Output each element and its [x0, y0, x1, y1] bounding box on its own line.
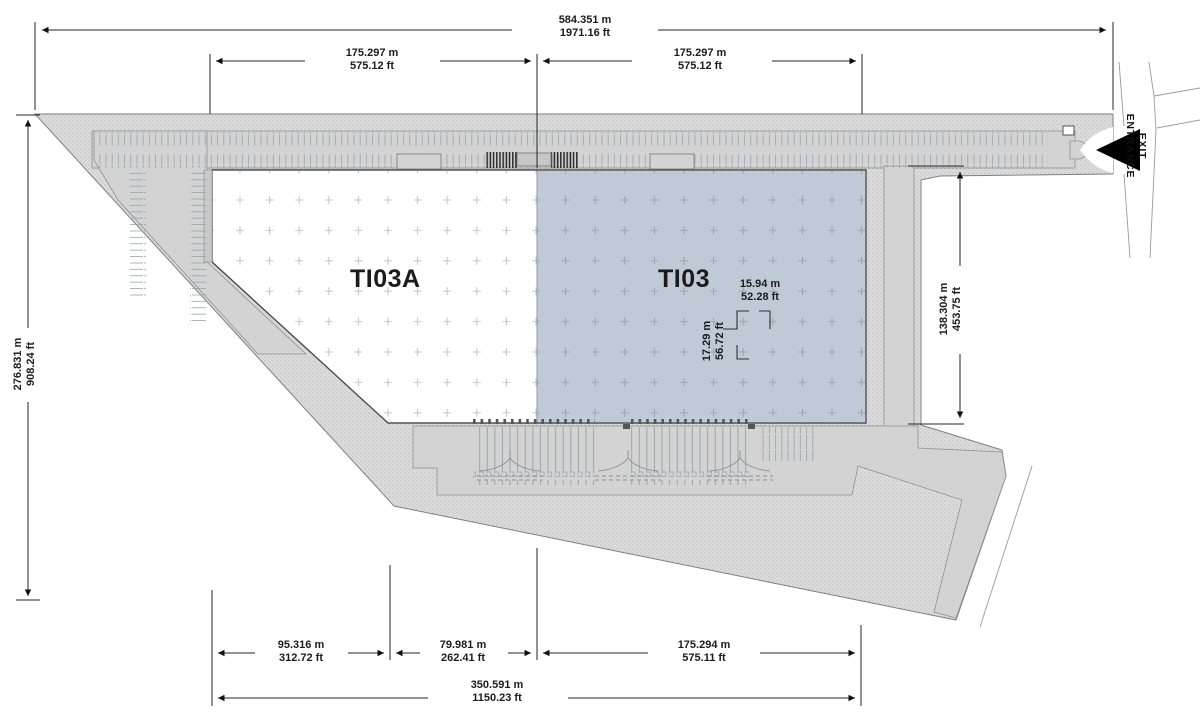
dim-left-overall: 276.831 m 908.24 ft	[12, 289, 38, 439]
dim-bottom-right-span: 175.294 m 575.11 ft	[634, 639, 774, 665]
unit-label-ti03a[interactable]: TI03A	[350, 266, 421, 292]
gatehouse	[1063, 126, 1074, 135]
south-door-mark-2	[748, 424, 755, 429]
north-stalls-upper	[96, 132, 1048, 146]
site-plan: 584.351 m 1971.16 ft 175.297 m 575.12 ft…	[0, 0, 1200, 727]
north-dock-doors-east	[551, 152, 579, 168]
dim-top-left-span: 175.297 m 575.12 ft	[302, 47, 442, 73]
north-dock-platform	[517, 153, 551, 166]
site-plan-drawing	[0, 0, 1200, 727]
entrance-label-line1: ENTRANCE	[1124, 101, 1136, 191]
dim-bottom-mid-span: 79.981 m 262.41 ft	[393, 639, 533, 665]
dim-top-overall: 584.351 m 1971.16 ft	[515, 14, 655, 40]
dim-top-right-span: 175.297 m 575.12 ft	[630, 47, 770, 73]
entry-canopy-east	[650, 154, 694, 169]
dim-bottom-left-span: 95.316 m 312.72 ft	[231, 639, 371, 665]
east-road	[884, 166, 914, 430]
unit-label-ti03[interactable]: TI03	[658, 266, 710, 292]
entry-canopy-west	[397, 154, 441, 169]
west-stalls-1	[130, 172, 146, 298]
dim-bay-depth: 17.29 m 56.72 ft	[701, 286, 727, 396]
corner-stalls	[762, 427, 817, 461]
north-dock-doors-west	[486, 152, 517, 168]
dim-bottom-overall: 350.591 m 1150.23 ft	[427, 679, 567, 705]
entrance-label-line2: EXIT	[1136, 101, 1148, 191]
dim-right-span: 138.304 m 453.75 ft	[938, 234, 964, 384]
west-stalls-2	[190, 172, 206, 322]
south-door-mark-1	[623, 424, 630, 429]
